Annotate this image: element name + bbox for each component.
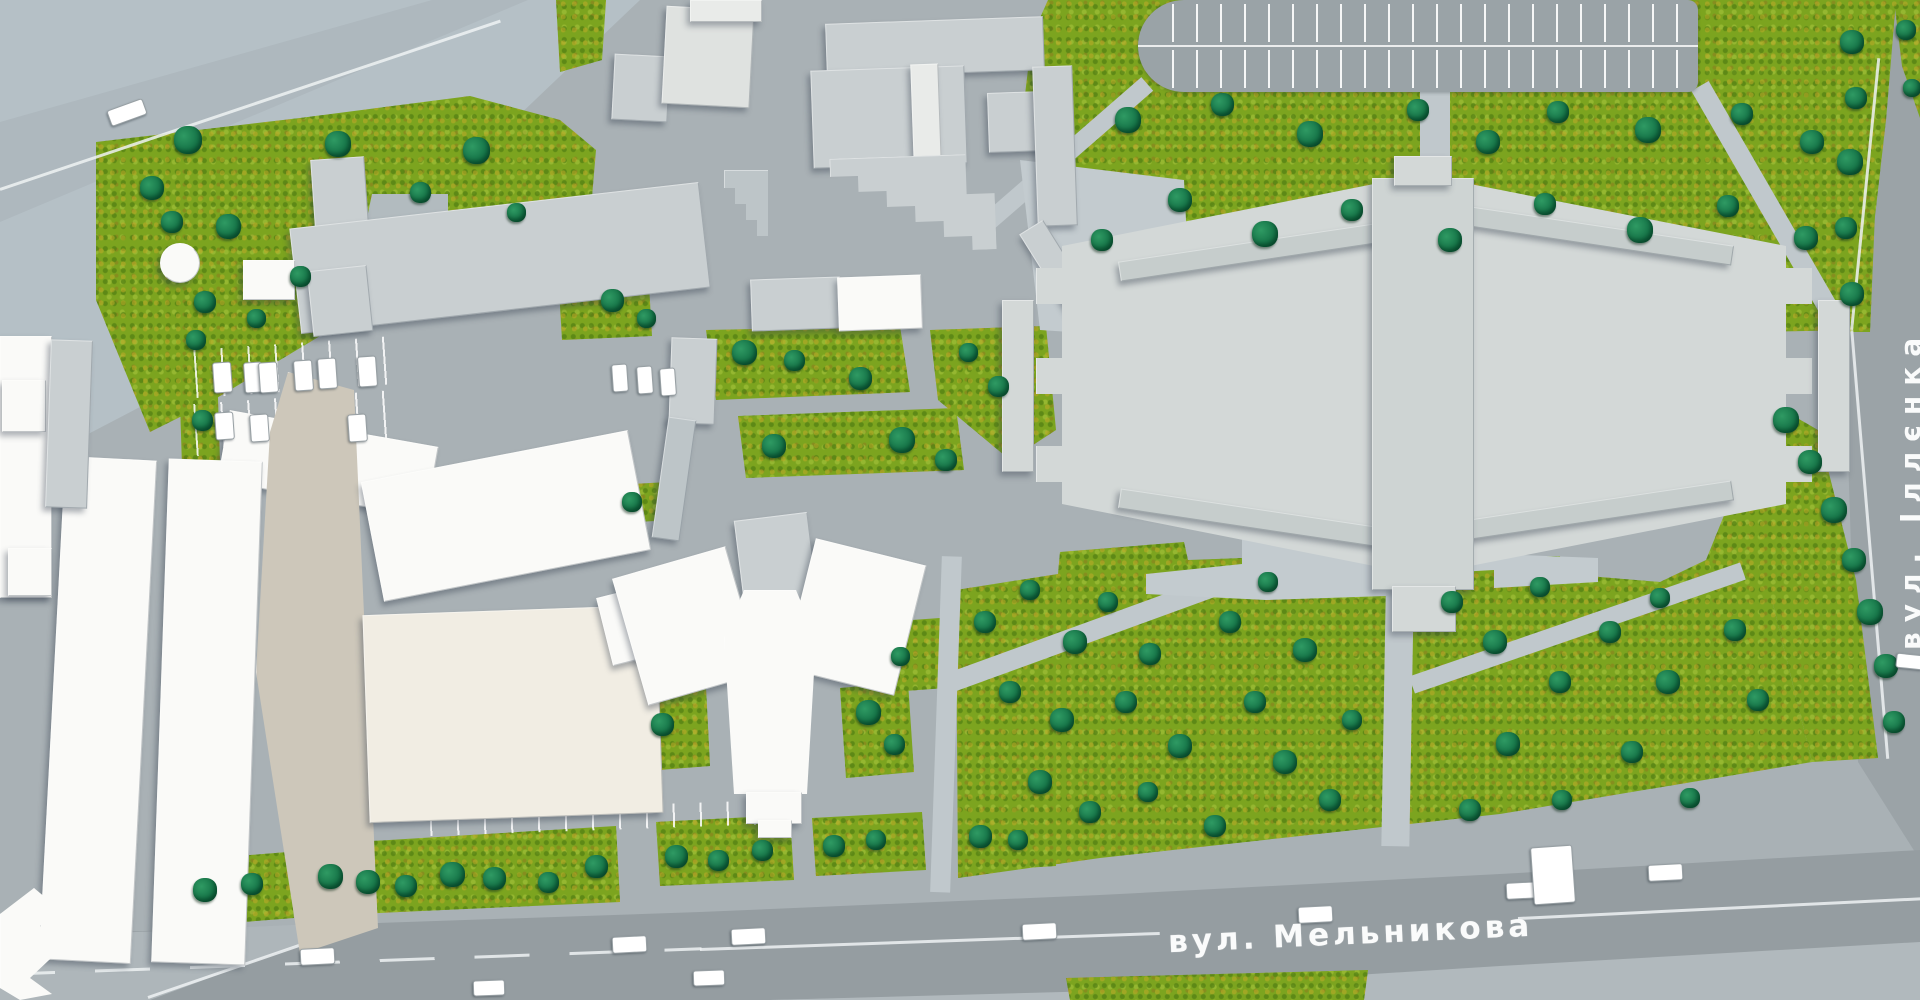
tree-101 (1773, 407, 1799, 433)
tree-109 (1903, 79, 1920, 97)
tree-50 (1139, 643, 1161, 665)
tree-47 (999, 681, 1021, 703)
tree-72 (1650, 588, 1670, 608)
tree-49 (1098, 592, 1118, 612)
tree-107 (1883, 711, 1905, 733)
car-27 (258, 361, 279, 393)
car-34 (214, 411, 235, 440)
tree-83 (1547, 101, 1569, 123)
car-29 (317, 357, 338, 389)
car-39 (731, 927, 767, 946)
tree-26 (884, 734, 905, 755)
tree-90 (1438, 228, 1462, 252)
tree-97 (1845, 87, 1867, 109)
car-48 (1895, 653, 1920, 671)
tree-94 (1794, 226, 1818, 250)
tree-54 (1079, 801, 1101, 823)
tree-74 (1621, 741, 1643, 763)
tree-6 (463, 137, 490, 164)
tree-3 (216, 214, 241, 239)
tree-28 (193, 878, 217, 902)
tree-39 (752, 840, 773, 861)
tree-68 (1496, 732, 1520, 756)
tree-40 (823, 835, 845, 857)
tree-25 (856, 700, 881, 725)
tree-82 (1476, 130, 1500, 154)
tree-32 (395, 875, 417, 897)
newbuild-slab-1 (39, 456, 157, 964)
tree-2 (161, 211, 183, 233)
tree-46 (1063, 630, 1087, 654)
building-complex-right-wing (1032, 65, 1078, 226)
tree-84 (1635, 117, 1661, 143)
tree-85 (1731, 103, 1753, 125)
structure-cylinder-tank (160, 243, 200, 283)
tree-98 (1837, 149, 1863, 175)
car-30 (357, 355, 378, 387)
car-32 (636, 365, 654, 394)
tree-76 (1724, 619, 1746, 641)
tree-92 (1627, 217, 1653, 243)
tree-103 (1821, 497, 1847, 523)
tree-37 (665, 845, 688, 868)
car-35 (249, 413, 270, 442)
tree-78 (1115, 107, 1141, 133)
tree-95 (1091, 229, 1113, 251)
building-complex-stepped (829, 153, 998, 257)
tree-27 (891, 647, 910, 666)
tree-55 (1138, 782, 1158, 802)
tree-9 (194, 291, 216, 313)
tree-87 (1168, 188, 1192, 212)
building-complex-strip (910, 64, 941, 165)
tree-0 (174, 126, 202, 154)
car-45 (693, 969, 726, 986)
tree-36 (585, 855, 608, 878)
leftedge-bump-1 (2, 380, 46, 432)
tree-53 (1028, 770, 1052, 794)
tree-18 (762, 434, 786, 458)
tree-56 (1219, 611, 1241, 633)
stair-block (724, 170, 770, 238)
tree-38 (708, 850, 729, 871)
car-44 (473, 979, 506, 996)
tree-69 (1459, 799, 1481, 821)
leftedge-bump-2 (8, 548, 52, 596)
tree-1 (140, 176, 164, 200)
tree-108 (1896, 20, 1916, 40)
building-bar-gray-half (750, 276, 842, 331)
tree-24 (651, 713, 674, 736)
tree-58 (1293, 638, 1317, 662)
car-28 (293, 359, 314, 391)
tree-67 (1549, 671, 1571, 693)
truck-46 (1530, 845, 1576, 906)
tree-93 (1717, 195, 1739, 217)
angel-tab-2 (758, 820, 792, 838)
street-label-side: вул. Іллєнка (1894, 328, 1920, 650)
car-38 (612, 935, 648, 954)
tree-105 (1857, 599, 1883, 625)
tree-61 (1204, 815, 1226, 837)
car-36 (347, 413, 368, 442)
tree-7 (410, 182, 431, 203)
tree-96 (1840, 30, 1864, 54)
building-complex-body (810, 65, 967, 168)
tree-89 (1341, 199, 1363, 221)
tree-66 (1530, 577, 1550, 597)
tree-22 (959, 343, 978, 362)
tree-79 (1211, 93, 1234, 116)
building-ramp (652, 417, 697, 542)
tree-71 (1599, 621, 1621, 643)
tree-102 (1798, 450, 1822, 474)
tree-99 (1835, 217, 1857, 239)
tree-70 (1552, 790, 1572, 810)
tree-91 (1534, 193, 1556, 215)
tree-4 (325, 131, 351, 157)
parking-lot (1138, 0, 1698, 92)
tree-106 (1874, 654, 1898, 678)
tree-86 (1800, 130, 1824, 154)
tree-14 (637, 309, 656, 328)
tree-21 (988, 376, 1009, 397)
tree-11 (186, 330, 206, 350)
tree-80 (1297, 121, 1323, 147)
car-31 (611, 363, 629, 392)
tree-73 (1656, 670, 1680, 694)
tree-42 (969, 825, 992, 848)
tree-63 (1342, 710, 1362, 730)
building-white-box (243, 260, 295, 300)
leftedge-gray-slab (45, 339, 93, 508)
tree-13 (601, 289, 624, 312)
tree-35 (538, 872, 559, 893)
tree-100 (1840, 282, 1864, 306)
bowtie-end-slab-right (1818, 300, 1850, 472)
tree-64 (1441, 591, 1463, 613)
tree-75 (1680, 788, 1700, 808)
tree-10 (247, 309, 266, 328)
tree-29 (241, 873, 263, 895)
tree-30 (318, 864, 343, 889)
tree-52 (1168, 734, 1192, 758)
tree-104 (1842, 548, 1866, 572)
tree-20 (935, 449, 957, 471)
tree-34 (483, 867, 506, 890)
tree-19 (889, 427, 915, 453)
building-bar-white-half (837, 275, 923, 332)
tree-59 (1244, 691, 1266, 713)
tree-12 (192, 410, 213, 431)
tree-41 (866, 830, 886, 850)
tree-8 (507, 203, 526, 222)
tree-65 (1483, 630, 1507, 654)
tree-16 (784, 350, 805, 371)
tree-31 (356, 870, 380, 894)
car-37 (300, 947, 336, 966)
tree-81 (1407, 99, 1429, 121)
tree-17 (849, 367, 872, 390)
tree-57 (1258, 572, 1278, 592)
tree-88 (1252, 221, 1278, 247)
angel-body (724, 590, 818, 796)
tree-60 (1273, 750, 1297, 774)
site-model-map: Ф вул. Мельникова вул. Іллєнка (0, 0, 1920, 1000)
car-33 (659, 367, 677, 396)
tree-62 (1319, 789, 1341, 811)
tree-43 (1008, 830, 1028, 850)
car-40 (1022, 922, 1058, 941)
tree-15 (732, 340, 757, 365)
tree-23 (622, 492, 642, 512)
building-tc-white-top (690, 0, 762, 22)
tree-48 (1050, 708, 1074, 732)
car-43 (1648, 863, 1684, 882)
car-25 (212, 361, 233, 393)
tree-44 (974, 611, 996, 633)
tree-51 (1115, 691, 1137, 713)
tree-33 (440, 862, 465, 887)
bowtie-core-cap-top (1394, 156, 1452, 186)
tree-45 (1020, 580, 1040, 600)
building-long-north-wing (307, 265, 374, 337)
tree-77 (1747, 689, 1769, 711)
tree-5 (290, 266, 311, 287)
